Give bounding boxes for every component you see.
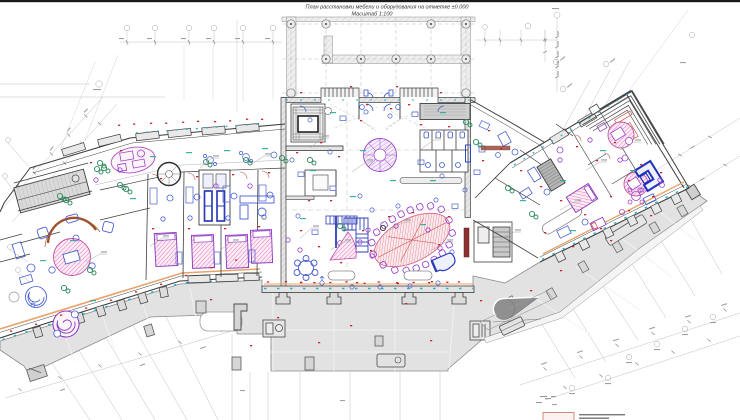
svg-text:Масштаб 1:100: Масштаб 1:100 [352,12,394,18]
svg-text:План расстановки мебели и обор: План расстановки мебели и оборудования н… [306,5,470,11]
